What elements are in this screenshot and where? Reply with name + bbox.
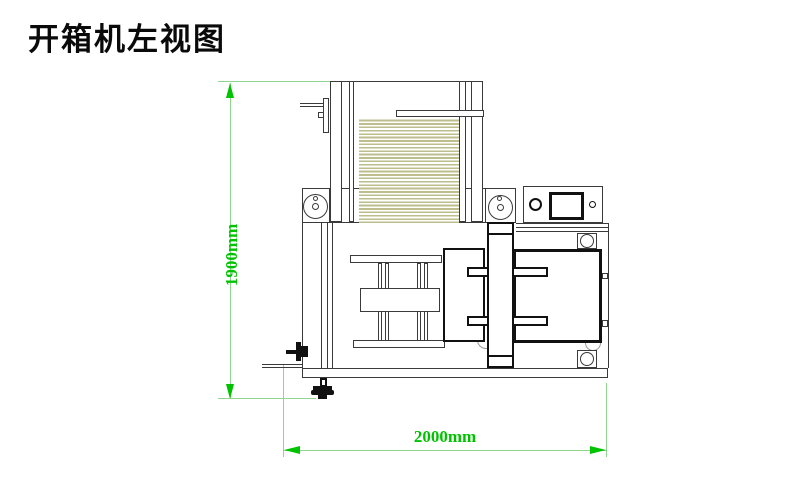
tower-column-left-wide bbox=[330, 81, 342, 222]
side-tab-lower bbox=[602, 320, 608, 327]
table-bottom-bar bbox=[353, 340, 445, 348]
arrow-left-icon bbox=[284, 446, 300, 454]
inner-wall-line-2 bbox=[327, 223, 328, 368]
arrow-up-icon bbox=[226, 83, 234, 98]
tower-top-line bbox=[330, 81, 483, 82]
tower-column-right-wide bbox=[471, 81, 483, 222]
panel-button bbox=[529, 198, 542, 211]
right-extension-line bbox=[606, 383, 607, 457]
arrow-down-icon bbox=[226, 384, 234, 399]
base-frame bbox=[302, 368, 608, 378]
inner-wall-line-1 bbox=[321, 223, 322, 368]
bearing-circle-bottom bbox=[580, 352, 594, 366]
drawing-canvas: 1900mm 2000mm bbox=[0, 0, 790, 486]
height-dimension-label: 1900mm bbox=[222, 224, 242, 286]
horizontal-dimension-line bbox=[284, 450, 606, 451]
drain-valve-body bbox=[301, 346, 308, 357]
table-middle-block bbox=[360, 288, 440, 312]
top-extension-line bbox=[218, 81, 330, 82]
tower-column-right-narrow bbox=[459, 81, 466, 222]
cardboard-stack bbox=[359, 118, 459, 223]
roller-left-shaft-hole bbox=[312, 203, 319, 210]
width-dimension-label: 2000mm bbox=[414, 427, 476, 447]
rail-line-upper bbox=[516, 227, 608, 228]
side-tab-upper bbox=[602, 273, 608, 279]
conveyor-body bbox=[513, 249, 602, 343]
tower-crossbeam bbox=[396, 110, 484, 117]
leveling-foot-stub bbox=[318, 395, 327, 399]
left-extension-line bbox=[283, 364, 284, 457]
roller-right-grease-fitting-icon bbox=[497, 196, 502, 201]
roller-left-grease-fitting-icon bbox=[313, 196, 318, 201]
slide-column-foot-line bbox=[489, 355, 512, 357]
side-pipe bbox=[262, 364, 302, 368]
body-top-line bbox=[516, 223, 608, 224]
table-top-bar bbox=[350, 255, 442, 263]
pusher-plate bbox=[443, 248, 485, 342]
slide-column-head-line bbox=[489, 233, 512, 235]
tower-column-left-narrow bbox=[349, 81, 354, 222]
inner-wall-line-3 bbox=[332, 223, 333, 368]
rail-line-lower bbox=[516, 231, 608, 232]
bottom-left-extension-line bbox=[218, 398, 316, 399]
panel-indicator bbox=[589, 201, 596, 208]
body-right-wall bbox=[608, 223, 609, 368]
page-title: 开箱机左视图 bbox=[28, 14, 226, 59]
bearing-circle-top bbox=[580, 234, 594, 248]
panel-display bbox=[549, 192, 584, 220]
arrow-right-icon bbox=[590, 446, 606, 454]
side-bracket-arm bbox=[300, 103, 323, 107]
side-bracket-nub bbox=[318, 112, 324, 118]
vertical-slide-column bbox=[487, 222, 514, 368]
roller-right-shaft-hole bbox=[497, 204, 504, 211]
